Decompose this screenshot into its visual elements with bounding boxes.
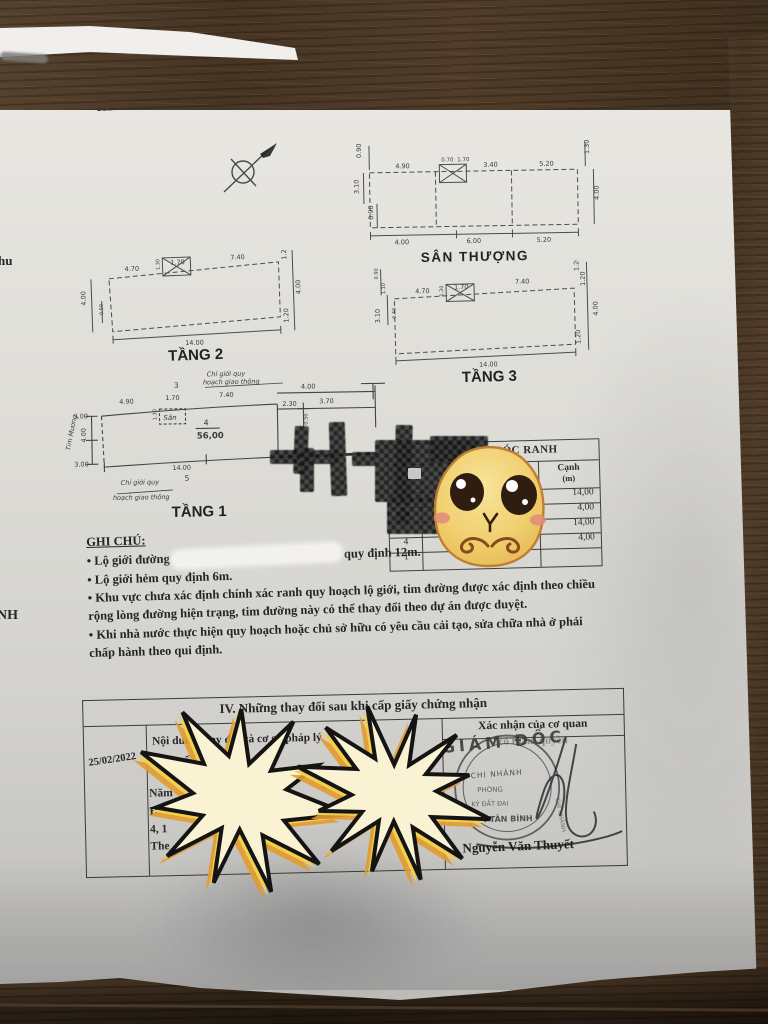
svg-text:3: 3 — [174, 381, 179, 390]
plan-tang1: Chỉ giới quy hoạch giao thông 4.90 1.70 … — [56, 368, 396, 522]
canh-header: Cạnh (m) — [538, 462, 600, 484]
edge-text-bottom: NH — [0, 608, 18, 624]
wood-table-bottom — [0, 940, 768, 1024]
svg-text:hoạch giao thông: hoạch giao thông — [113, 493, 170, 502]
svg-text:0.40: 0.40 — [392, 308, 398, 319]
content-fragment: Đi — [149, 805, 161, 817]
pencil-smudge — [0, 51, 48, 63]
svg-text:0.90: 0.90 — [374, 268, 380, 279]
small-ink-mark — [686, 68, 703, 75]
goc-ranh-title: GÓC RANH — [455, 442, 595, 458]
svg-text:0.90: 0.90 — [355, 143, 363, 158]
svg-text:1.20: 1.20 — [282, 308, 291, 323]
svg-text:1.10: 1.10 — [381, 283, 387, 294]
ghi-chu-notes: GHI CHÚ: • Lộ giới đường quy định 12m. •… — [86, 519, 609, 663]
svg-text:4.00: 4.00 — [301, 382, 316, 390]
stamp-ring-text: CHI NHÁNH — [553, 797, 567, 832]
svg-text:4.00: 4.00 — [591, 301, 599, 316]
edge-text-top: hu — [0, 253, 12, 269]
svg-text:4.00: 4.00 — [395, 238, 410, 246]
svg-text:hoạch giao thông: hoạch giao thông — [203, 377, 260, 386]
plan-label-tang1: TẦNG 1 — [172, 503, 227, 521]
svg-text:7.40: 7.40 — [515, 277, 530, 285]
svg-text:1.70: 1.70 — [454, 283, 469, 291]
svg-text:4.00: 4.00 — [593, 185, 601, 200]
table-row: 14,00 — [539, 487, 594, 503]
svg-text:1.30: 1.30 — [439, 285, 445, 296]
svg-text:0.50: 0.50 — [99, 304, 105, 315]
content-fragment: Năm — [149, 787, 173, 800]
svg-text:0.70: 0.70 — [441, 157, 454, 163]
section3-title: III. Sơ đồ thửa đất, nhà ở và tài sản kh… — [96, 79, 496, 115]
content-fragment: 01 — [321, 780, 333, 792]
svg-text:4.00: 4.00 — [294, 280, 303, 295]
content-fragment: • Chuyể — [150, 755, 189, 768]
svg-text:0.50: 0.50 — [303, 413, 309, 424]
svg-text:Tim Mương: Tim Mương — [64, 414, 79, 451]
svg-text:3.00: 3.00 — [74, 460, 89, 468]
plan-tang3: 0.90 1.10 3.10 0.40 4.70 1.70 7.40 1.30 … — [372, 260, 638, 386]
plan-san-thuong: 0.90 4.90 0.70 1.70 3.40 5.20 1.30 4.00 … — [350, 140, 602, 272]
under-sheet-sliver — [0, 0, 310, 70]
svg-text:5.20: 5.20 — [537, 236, 552, 244]
svg-text:14.00: 14.00 — [172, 464, 191, 472]
signer-name: Nguyễn Văn Thuyết — [462, 836, 574, 856]
svg-text:1.70: 1.70 — [170, 258, 185, 267]
stamp-ring-text: CHI NHÁNH — [470, 767, 523, 780]
svg-text:6.00: 6.00 — [467, 237, 482, 245]
left-col-header: Nội dung thay đổi và cơ sở pháp lý — [152, 729, 440, 748]
wood-table-right — [700, 0, 768, 1024]
svg-text:3.40: 3.40 — [483, 161, 498, 169]
svg-text:1.20: 1.20 — [574, 329, 582, 344]
svg-text:4.00: 4.00 — [79, 291, 88, 306]
svg-text:1.70: 1.70 — [457, 157, 470, 163]
section4-table: IV. Những thay đổi sau khi cấp giấy chứn… — [82, 688, 628, 878]
svg-text:1.30: 1.30 — [155, 259, 161, 270]
svg-text:4.90: 4.90 — [119, 398, 134, 406]
north-arrow-icon — [216, 140, 280, 200]
svg-text:1.70: 1.70 — [165, 394, 180, 402]
stamp-ring-text: PHÒNG — [477, 785, 503, 795]
svg-text:1.20: 1.20 — [280, 250, 289, 260]
svg-text:4.70: 4.70 — [124, 265, 139, 274]
svg-text:56,00: 56,00 — [197, 431, 224, 441]
content-fragment: 4, 1 — [150, 823, 168, 835]
svg-text:7.40: 7.40 — [230, 253, 245, 262]
svg-text:4.70: 4.70 — [415, 287, 430, 295]
svg-text:4.90: 4.90 — [395, 162, 410, 170]
svg-text:Chỉ giới quy: Chỉ giới quy — [121, 478, 160, 487]
svg-text:3.10: 3.10 — [374, 309, 382, 324]
svg-text:4: 4 — [204, 418, 209, 427]
right-col-header: Xác nhận của cơ quan — [444, 717, 622, 733]
table-row: 2 — [389, 507, 421, 523]
content-fragment: The — [150, 840, 169, 852]
wood-seam — [0, 1003, 768, 1011]
svg-text:1.20: 1.20 — [579, 271, 587, 286]
svg-text:1.30: 1.30 — [152, 409, 158, 420]
svg-text:2.30: 2.30 — [282, 400, 297, 408]
svg-text:Sân: Sân — [163, 414, 176, 422]
svg-text:5: 5 — [184, 474, 189, 483]
svg-text:3.70: 3.70 — [319, 397, 334, 405]
svg-text:0.90: 0.90 — [367, 205, 375, 220]
svg-text:5.20: 5.20 — [539, 160, 554, 168]
stamp-ring-text: VĂN TÂN BÌNH — [468, 812, 533, 824]
svg-text:7.40: 7.40 — [219, 391, 234, 399]
table-row: 4,00 — [539, 502, 594, 518]
north-flag — [260, 143, 277, 158]
stamp-ring-text: KÝ ĐẤT ĐAI — [471, 798, 508, 809]
plan-tang2: 4.70 1.70 7.40 1.30 1.20 4.00 1.20 4.00 … — [72, 250, 310, 368]
table-row: 1 — [389, 492, 421, 508]
svg-text:4.00: 4.00 — [80, 428, 88, 443]
svg-text:1.30: 1.30 — [583, 140, 591, 154]
plan-label-tang2: TẦNG 2 — [168, 346, 224, 365]
date-label: 25/02/2022 — [88, 751, 137, 769]
svg-text:3.10: 3.10 — [353, 180, 361, 195]
signature-scribble — [474, 735, 622, 849]
photo-scene: hu NH III. Sơ đồ thửa đất, nhà ở và tài … — [0, 0, 768, 1024]
plan-label-tang3: TẦNG 3 — [462, 368, 517, 386]
svg-text:1.20: 1.20 — [572, 260, 580, 271]
